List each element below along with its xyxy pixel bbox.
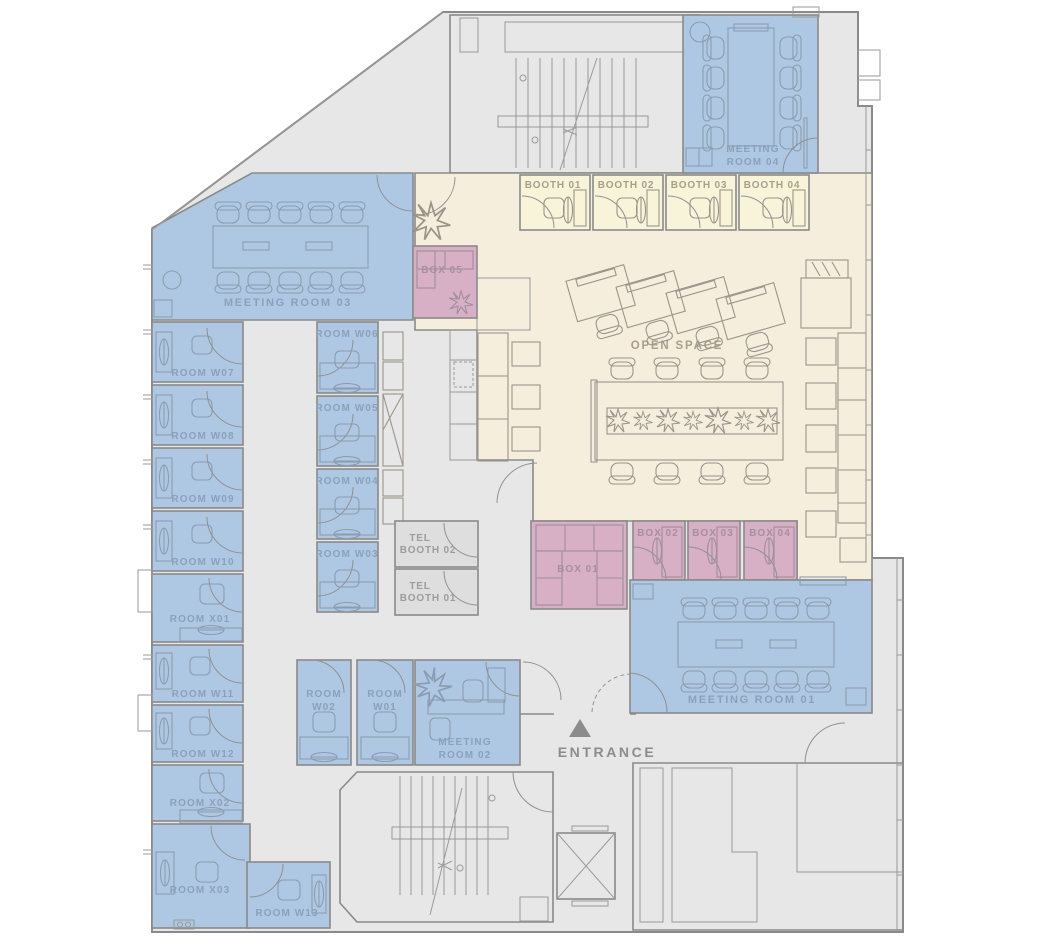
room-label: ROOM W11 <box>172 689 235 700</box>
room-w02: ROOM W02 <box>297 660 351 765</box>
room-label: BOX 03 <box>692 528 734 539</box>
svg-text:TEL: TEL <box>409 533 430 544</box>
room-label: TEL <box>409 581 430 592</box>
svg-text:ROOM: ROOM <box>306 689 342 700</box>
svg-text:BOOTH 01: BOOTH 01 <box>400 593 456 604</box>
room-w11: ROOM W11 <box>152 645 243 702</box>
room-label: ROOM 04 <box>727 157 780 168</box>
room-label: ROOM W07 <box>171 368 234 379</box>
room-label: ROOM W05 <box>315 403 378 414</box>
room-label: ROOM X01 <box>170 614 230 625</box>
room-label: BOOTH 01 <box>400 593 456 604</box>
room-x02: ROOM X02 <box>152 765 243 823</box>
room-tel-booth-01: TEL BOOTH 01 <box>395 569 478 615</box>
svg-text:W01: W01 <box>373 702 397 713</box>
svg-text:TEL: TEL <box>409 581 430 592</box>
room-booth-01: BOOTH 01 <box>520 175 590 230</box>
room-box-04: BOX 04 <box>744 521 797 580</box>
room-box-02: BOX 02 <box>633 521 685 580</box>
room-label: BOX 02 <box>637 528 679 539</box>
room-label: MEETING ROOM 03 <box>224 297 352 309</box>
room-w01: ROOM W01 <box>357 660 413 765</box>
room-label: MEETING <box>438 737 491 748</box>
room-w05: ROOM W05 <box>315 396 378 466</box>
room-w03: ROOM W03 <box>315 542 378 612</box>
room-label: ROOM <box>367 689 403 700</box>
room-label: MEETING ROOM 01 <box>688 694 816 706</box>
room-label: BOX 01 <box>557 564 599 575</box>
svg-text:MEETING: MEETING <box>438 737 491 748</box>
room-meeting-03: MEETING ROOM 03 <box>152 173 413 320</box>
room-label: MEETING <box>726 144 779 155</box>
room-label: ROOM W08 <box>171 431 234 442</box>
room-booth-03: BOOTH 03 <box>666 175 736 230</box>
room-label: W01 <box>373 702 397 713</box>
room-label: ROOM W09 <box>171 494 234 505</box>
svg-text:W02: W02 <box>312 702 336 713</box>
room-label: ROOM <box>306 689 342 700</box>
room-label: ROOM X02 <box>170 798 230 809</box>
room-meeting-04: MEETING ROOM 04 <box>683 15 818 173</box>
svg-text:ROOM 02: ROOM 02 <box>439 750 492 761</box>
room-w10: ROOM W10 <box>152 511 243 571</box>
room-label: BOOTH 04 <box>744 180 800 191</box>
room-w07: ROOM W07 <box>152 322 243 382</box>
room-w08: ROOM W08 <box>152 385 243 445</box>
room-booth-04: BOOTH 04 <box>739 175 809 230</box>
floor-plan-svg: OPEN SPACE <box>0 0 1043 949</box>
room-label: BOX 05 <box>421 265 463 276</box>
room-box-03: BOX 03 <box>688 521 740 580</box>
room-label: BOOTH 01 <box>525 180 581 191</box>
room-tel-booth-02: TEL BOOTH 02 <box>395 521 478 567</box>
room-label: ROOM W13 <box>255 908 318 919</box>
room-box-01: BOX 01 <box>531 521 627 609</box>
room-meeting-02: MEETING ROOM 02 <box>409 660 520 765</box>
room-label: BOX 04 <box>749 528 791 539</box>
room-label: BOOTH 03 <box>671 180 727 191</box>
room-label: ROOM W10 <box>171 557 234 568</box>
room-w13: ROOM W13 <box>247 862 330 928</box>
room-label: W02 <box>312 702 336 713</box>
svg-text:BOOTH 02: BOOTH 02 <box>400 545 456 556</box>
room-x03: ROOM X03 <box>152 824 250 929</box>
entrance-label: ENTRANCE <box>558 744 657 760</box>
room-label: ROOM X03 <box>170 885 230 896</box>
svg-text:ROOM 04: ROOM 04 <box>727 157 780 168</box>
svg-text:ROOM: ROOM <box>367 689 403 700</box>
room-label: ROOM W06 <box>315 329 378 340</box>
room-w09: ROOM W09 <box>152 448 243 508</box>
room-label: ROOM 02 <box>439 750 492 761</box>
room-label: BOOTH 02 <box>598 180 654 191</box>
room-label: ROOM W04 <box>315 476 378 487</box>
room-x01: ROOM X01 <box>152 574 243 642</box>
svg-text:MEETING: MEETING <box>726 144 779 155</box>
floor-plan: OPEN SPACE <box>0 0 1043 949</box>
room-w06: ROOM W06 <box>315 322 378 393</box>
room-box-05: BOX 05 <box>413 246 477 318</box>
room-w12: ROOM W12 <box>152 705 243 762</box>
room-meeting-01: MEETING ROOM 01 <box>630 577 872 713</box>
room-label: ROOM W12 <box>171 749 234 760</box>
open-space-label: OPEN SPACE <box>631 340 724 352</box>
room-label: BOOTH 02 <box>400 545 456 556</box>
room-label: TEL <box>409 533 430 544</box>
room-label: ROOM W03 <box>315 549 378 560</box>
room-booth-02: BOOTH 02 <box>593 175 663 230</box>
room-w04: ROOM W04 <box>315 469 378 539</box>
